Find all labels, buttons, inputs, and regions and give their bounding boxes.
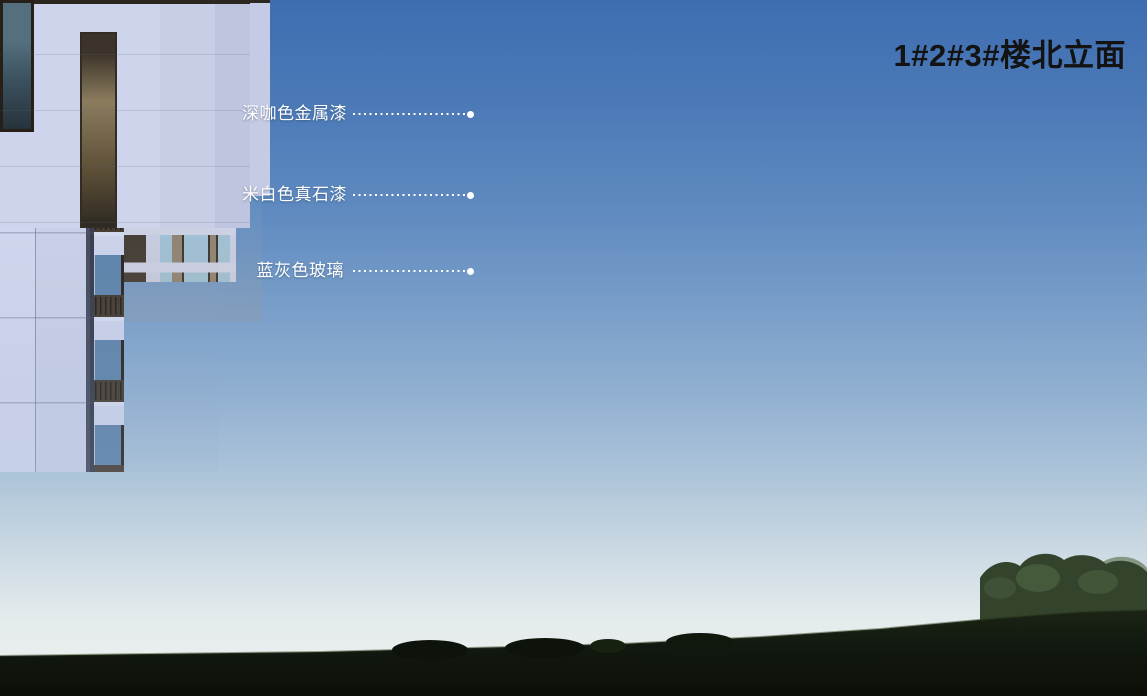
annotation-dark-coffee-metallic-paint: 深咖色金属漆: [242, 105, 474, 123]
annotation-label: 米白色真石漆: [242, 186, 344, 204]
annotation-endpoint-dot: [467, 192, 474, 199]
shrub: [392, 640, 468, 660]
annotation-blue-gray-glass: 蓝灰色玻璃: [242, 262, 474, 280]
storefront-glass-door: [0, 0, 34, 132]
annotation-endpoint-dot: [467, 268, 474, 275]
annotation-label: 蓝灰色玻璃: [242, 262, 344, 280]
annotation-endpoint-dot: [467, 111, 474, 118]
architectural-elevation-rendering: 1#2#3#楼北立面 深咖色金属漆 米白色真石漆 蓝灰色玻璃: [0, 0, 1147, 696]
annotation-off-white-stone-paint: 米白色真石漆: [242, 186, 474, 204]
shrub: [590, 639, 626, 653]
annotation-leader-line: [353, 194, 467, 196]
tree-highlight: [1016, 564, 1060, 592]
lawn: [0, 600, 1147, 696]
podium-window-warm-lit: [80, 32, 117, 228]
tree-highlight: [1078, 570, 1118, 594]
annotation-label: 深咖色金属漆: [242, 105, 344, 123]
shrub: [505, 638, 585, 658]
annotation-leader-line: [353, 270, 467, 272]
tree-highlight: [984, 577, 1016, 599]
metal-louver-panel: [0, 0, 30, 78]
annotation-leader-line: [353, 113, 467, 115]
shrub: [666, 633, 734, 651]
drawing-title: 1#2#3#楼北立面: [860, 30, 1126, 75]
podium-wing-front: [0, 0, 250, 228]
